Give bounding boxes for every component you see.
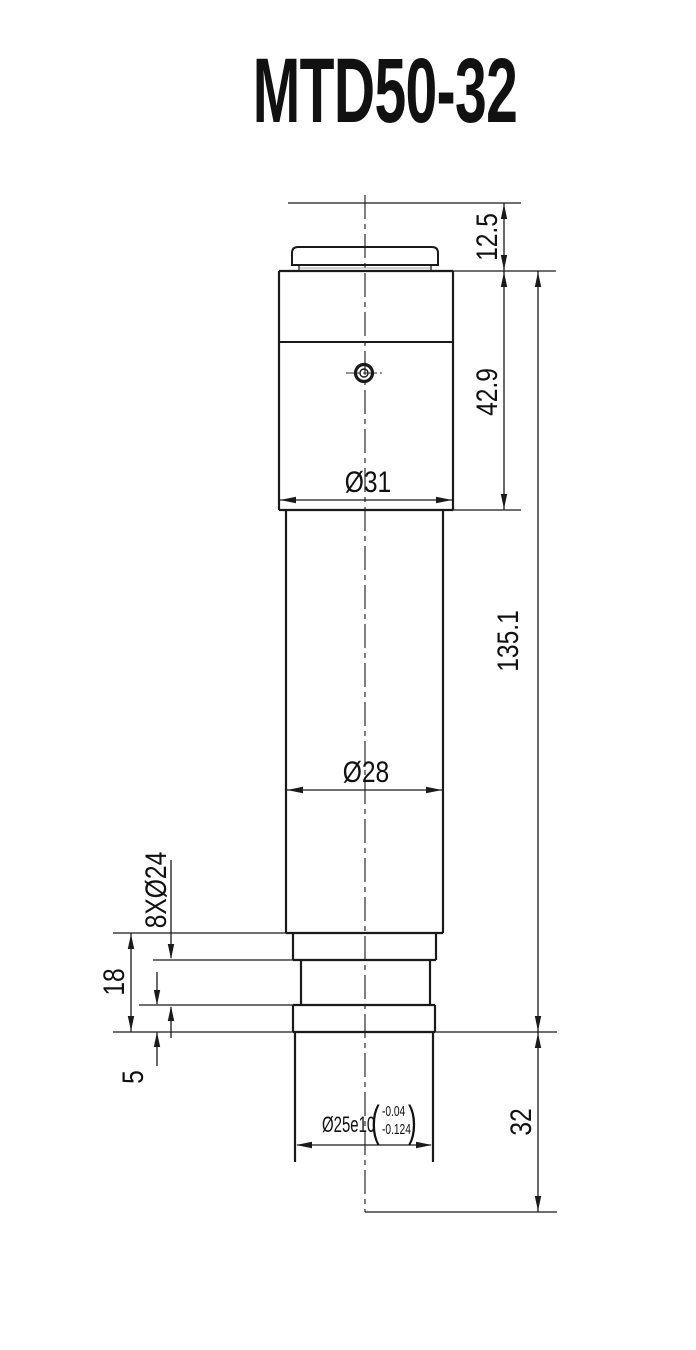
dim-8xo24-arrow-down [168, 944, 174, 959]
dim-42-9-arrow-up [501, 272, 507, 287]
dimension-tube-diameter: Ø28 [286, 755, 443, 794]
dim-32-arrow-up [535, 1033, 541, 1048]
dim-8xo24-label: 8XØ24 [139, 852, 173, 929]
dim-o31-arrow-right [436, 497, 452, 503]
dim-o25-arrow-left [296, 1142, 312, 1148]
dim-o28-label: Ø28 [343, 755, 389, 789]
dim-o31-label: Ø31 [345, 465, 391, 499]
dim-o25-tolerance-upper: -0.04 [382, 1102, 405, 1120]
engineering-drawing-page: MTD50-32 [0, 0, 696, 1350]
dim-o25-label: Ø25e10 [322, 1112, 375, 1137]
dim-32-label: 32 [504, 1108, 538, 1135]
dimension-upper-body-diameter: Ø31 [279, 465, 453, 504]
dim-o28-arrow-right [426, 787, 442, 793]
dim-5-arrow-up [154, 1032, 160, 1047]
dim-135-1-arrow-up [535, 272, 541, 287]
dim-18-label: 18 [97, 968, 131, 995]
dim-5-label: 5 [116, 1070, 150, 1084]
dim-o25-tolerance-lower: -0.124 [382, 1120, 411, 1138]
dim-5-arrow-down [154, 990, 160, 1005]
dim-12-5-label: 12.5 [470, 213, 504, 261]
dim-o28-arrow-left [287, 787, 303, 793]
dim-18-arrow-down [128, 1016, 134, 1031]
part-title: MTD50-32 [253, 40, 517, 142]
dim-o25-open-paren: ( [371, 1096, 380, 1146]
technical-drawing: MTD50-32 [0, 0, 696, 1350]
dim-135-1-label: 135.1 [491, 610, 525, 672]
dim-42-9-label: 42.9 [470, 368, 504, 416]
dimension-flange-height: 18 [97, 933, 135, 1032]
dim-o25-close-paren: ) [408, 1096, 417, 1146]
part-outline [113, 203, 557, 1212]
dim-42-9-arrow-down [501, 494, 507, 509]
dimension-flange-holes: 8XØ24 [139, 852, 175, 1038]
dim-o25-arrow-right [416, 1142, 432, 1148]
dim-8xo24-arrow-up [168, 1006, 174, 1021]
dimension-shaft-diameter: Ø25e10 ( -0.04 -0.124 ) [296, 1096, 432, 1148]
dimension-shaft-length: 32 [504, 1032, 542, 1212]
dimension-cap-height: 12.5 [470, 203, 508, 271]
dim-32-arrow-down [535, 1196, 541, 1211]
dimension-upper-body-height: 42.9 [470, 271, 508, 510]
dim-135-1-arrow-down [535, 1016, 541, 1031]
dim-o31-arrow-left [280, 497, 296, 503]
dim-18-arrow-up [128, 934, 134, 949]
centerlines [346, 195, 382, 1212]
